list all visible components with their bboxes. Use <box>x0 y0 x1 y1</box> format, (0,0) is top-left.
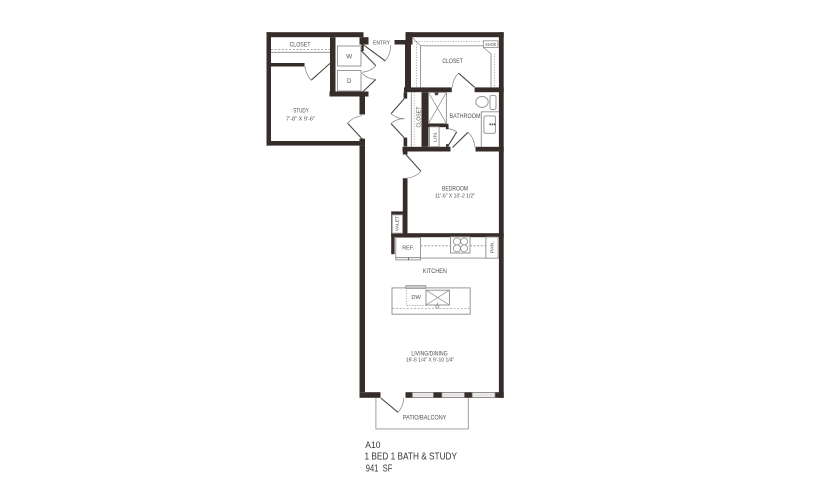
svg-text:STUDY: STUDY <box>293 108 309 115</box>
svg-text:VALET: VALET <box>394 216 400 232</box>
svg-text:LIN.: LIN. <box>432 131 438 142</box>
svg-text:BATHROOM: BATHROOM <box>450 113 481 120</box>
svg-text:KITCHEN: KITCHEN <box>423 268 447 275</box>
svg-text:LIVING/DINING: LIVING/DINING <box>411 350 447 357</box>
svg-text:11'-6" X 10'-2 1/2": 11'-6" X 10'-2 1/2" <box>435 193 475 199</box>
svg-text:BEDROOM: BEDROOM <box>442 186 468 193</box>
svg-text:16'-6 1/4" X 9'-10 1/4": 16'-6 1/4" X 9'-10 1/4" <box>406 358 455 364</box>
svg-text:CLOSET: CLOSET <box>417 106 423 128</box>
svg-text:1 BED 1 BATH & STUDY: 1 BED 1 BATH & STUDY <box>365 452 458 463</box>
svg-text:A10: A10 <box>365 440 380 450</box>
svg-text:PATIO/BALCONY: PATIO/BALCONY <box>403 416 447 422</box>
svg-text:PAN.: PAN. <box>490 241 496 253</box>
svg-text:941 SF: 941 SF <box>366 464 393 475</box>
svg-text:REF.: REF. <box>402 246 414 252</box>
svg-text:7'-8" X 9'-6": 7'-8" X 9'-6" <box>286 116 315 122</box>
svg-text:ENTRY: ENTRY <box>373 41 390 47</box>
svg-text:DW: DW <box>411 295 421 301</box>
svg-text:CLOSET: CLOSET <box>290 42 311 49</box>
svg-text:D: D <box>347 78 352 85</box>
svg-text:CLOSET: CLOSET <box>442 58 463 65</box>
svg-text:W: W <box>346 54 352 61</box>
svg-text:SHOE: SHOE <box>485 42 496 47</box>
